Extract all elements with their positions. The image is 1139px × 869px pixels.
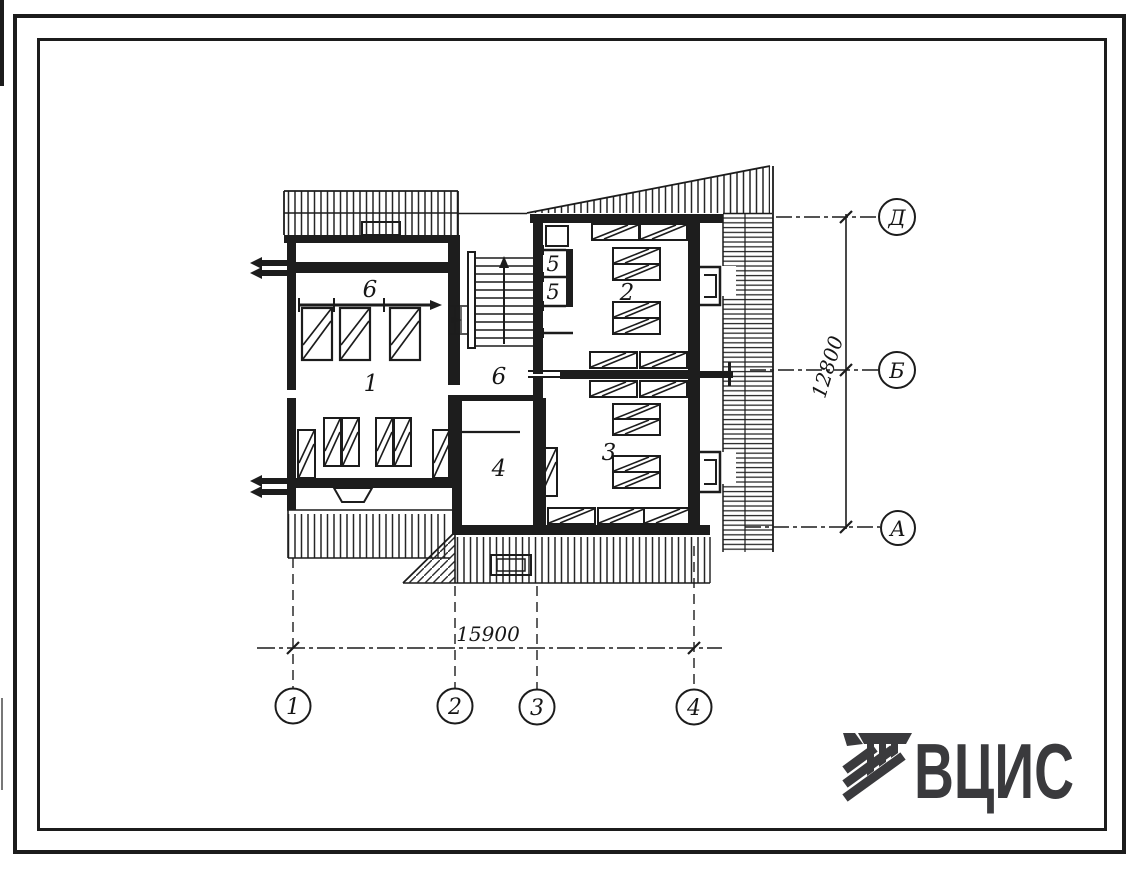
staircase [449,252,533,348]
logo: ВЦИС [843,727,1074,815]
axis-markers-bottom: 1 2 3 4 [276,689,712,725]
axis-markers-right: Д Б А [879,199,915,545]
drawing-sheet: 6 1 5 5 6 2 3 4 15900 1 2 3 4 [0,0,1139,869]
inner-border [39,40,1106,830]
sheet-frame [0,0,1124,852]
scan-edge-artifact [0,0,4,86]
room-label-3: 3 [602,440,617,466]
bay-window [334,488,372,502]
scan-edge-artifact [1,698,3,790]
room-label-6-upper: 6 [363,277,378,303]
room-label-5a: 5 [546,252,559,276]
axis-label-1: 1 [286,695,300,720]
axis-label-d: Д [887,206,906,230]
room-label-6-hall: 6 [492,364,507,390]
logo-wordmark: ВЦИС [914,727,1074,815]
axis-label-b: Б [888,359,904,383]
axis-label-2: 2 [447,695,462,720]
dimension-value-horizontal: 15900 [456,622,520,646]
floor-plan-drawing: 6 1 5 5 6 2 3 4 15900 1 2 3 4 [0,0,1139,869]
logo-emblem-icon [843,733,912,798]
room-label-4: 4 [491,456,507,482]
room-label-5b: 5 [546,280,559,304]
dimension-value-vertical: 12800 [807,333,849,401]
axis-label-a: А [888,517,906,541]
room-label-1: 1 [364,371,379,397]
axis-label-4: 4 [686,696,701,721]
axis-label-3: 3 [530,696,544,721]
room-label-2: 2 [619,280,635,306]
